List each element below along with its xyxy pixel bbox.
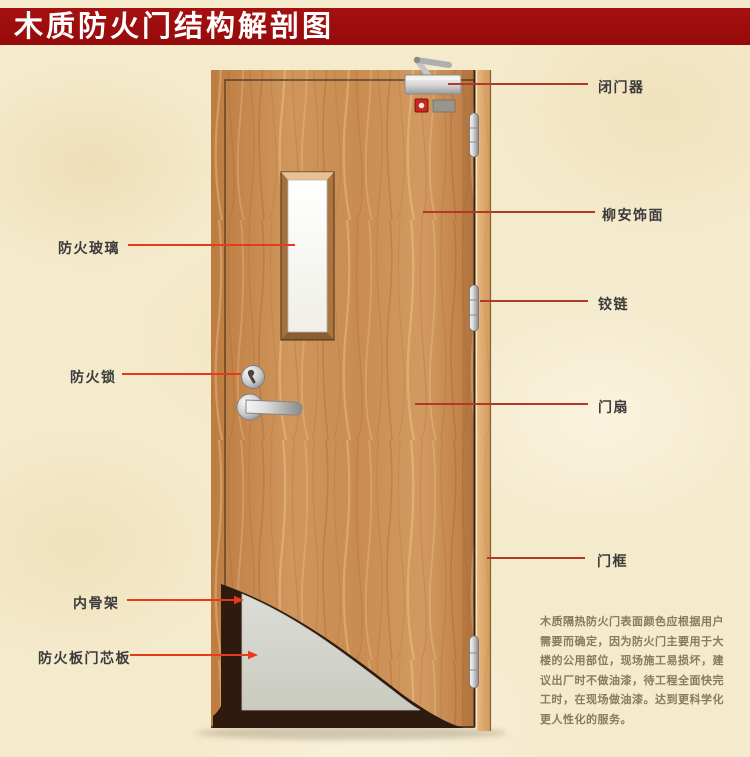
description-line: 工时，在现场做油漆。达到更科学化	[540, 691, 745, 711]
fire-glass-pane	[288, 180, 327, 332]
label-door-leaf: 门扇	[598, 397, 629, 417]
door-frame-strip	[477, 70, 491, 731]
alarm-indicator	[415, 99, 428, 112]
description-line: 更人性化的服务。	[540, 711, 745, 731]
strike-plate	[433, 100, 455, 112]
label-door-frame: 门框	[597, 551, 628, 571]
description-line: 议出厂时不做油漆，待工程全面快完	[540, 672, 745, 692]
diagram-page: 木质防火门结构解剖图	[0, 0, 750, 757]
label-lauan-veneer: 柳安饰面	[602, 205, 664, 225]
label-fire-glass: 防火玻璃	[58, 238, 120, 258]
description-line: 木质隔热防火门表面颜色应根据用户	[540, 613, 745, 633]
label-inner-skeleton: 内骨架	[73, 593, 120, 613]
description-text: 木质隔热防火门表面颜色应根据用户 需要而确定，因为防火门主要用于大 楼的公用部位…	[540, 613, 745, 731]
label-door-closer: 闭门器	[598, 77, 645, 97]
glass-window	[281, 172, 334, 340]
description-line: 需要而确定，因为防火门主要用于大	[540, 633, 745, 653]
label-fire-lock: 防火锁	[70, 367, 117, 387]
door-closer	[405, 57, 461, 94]
hinge-middle	[470, 285, 479, 331]
hinge-bottom	[470, 636, 479, 688]
hinge-top	[470, 113, 479, 157]
description-line: 楼的公用部位，现场施工易损坏，建	[540, 652, 745, 672]
door-shadow	[197, 726, 507, 740]
label-fire-board-core: 防火板门芯板	[38, 648, 131, 668]
label-hinge: 铰链	[598, 294, 629, 314]
